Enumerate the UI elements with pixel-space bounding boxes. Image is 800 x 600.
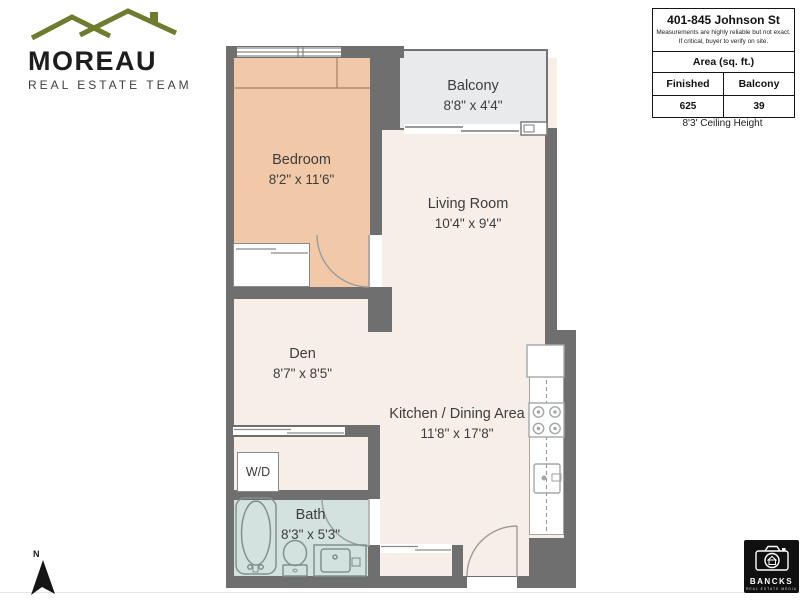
north-arrow-icon: [31, 560, 55, 595]
kitchen-counter: [529, 345, 564, 535]
balcony-value: 39: [723, 96, 794, 117]
property-info-box: 401-845 Johnson St Measurements are high…: [652, 8, 795, 118]
bedroom-window: [237, 47, 341, 57]
washer-dryer-label: W/D: [246, 465, 270, 479]
entry-door-gap: [467, 577, 517, 588]
bancks-logo: BANCKS REAL ESTATE MEDIA: [744, 540, 799, 593]
finished-header: Finished: [653, 73, 723, 95]
wall-bottom-right-block: [529, 538, 576, 588]
moreau-subtitle: REAL ESTATE TEAM: [28, 78, 248, 92]
area-column-headers: Finished Balcony: [653, 72, 794, 95]
page-bottom-divider: [0, 592, 800, 593]
washer-dryer-box: W/D: [237, 452, 279, 492]
floor-plan-page: Bedroom 8'2" x 11'6" Balcony 8'8" x 4'4"…: [0, 0, 800, 600]
wall-bedroom-right: [370, 58, 382, 235]
disclaimer-line2: If critical, buyer to verify on site.: [655, 38, 792, 47]
area-values: 625 39: [653, 95, 794, 117]
wall-living-right: [545, 128, 557, 332]
wall-den-step-block: [368, 287, 392, 332]
bancks-subtitle: REAL ESTATE MEDIA: [744, 587, 799, 591]
area-header: Area (sq. ft.): [653, 51, 794, 72]
moreau-title: MOREAU: [28, 46, 248, 77]
bath-door-gap: [368, 499, 380, 545]
balcony-header: Balcony: [723, 73, 794, 95]
balcony-sliding-door: [404, 124, 521, 134]
north-label: N: [33, 549, 40, 559]
den-sliding-opening: [233, 427, 345, 435]
camera-house-icon: [750, 544, 794, 572]
balcony-area: [398, 49, 548, 130]
finished-value: 625: [653, 96, 723, 117]
bancks-title: BANCKS: [744, 577, 799, 586]
address-text: 401-845 Johnson St: [653, 9, 794, 28]
wall-kitchen-right: [564, 332, 576, 538]
bedroom-closet: [233, 243, 310, 287]
entry-closet-sliding-door: [380, 544, 452, 553]
bath-fill: [233, 495, 368, 578]
bedroom-door-gap: [370, 235, 382, 287]
disclaimer-text: Measurements are highly reliable but not…: [653, 28, 794, 51]
wall-bottom: [226, 576, 576, 588]
moreau-logo: MOREAU REAL ESTATE TEAM: [28, 8, 248, 92]
ceiling-height-note: 8'3' Ceiling Height: [652, 118, 793, 129]
moreau-roof-icon: [28, 8, 198, 40]
disclaimer-line1: Measurements are highly reliable but not…: [655, 29, 792, 38]
wall-left: [226, 46, 234, 588]
wall-bath-right-upper: [368, 437, 380, 500]
